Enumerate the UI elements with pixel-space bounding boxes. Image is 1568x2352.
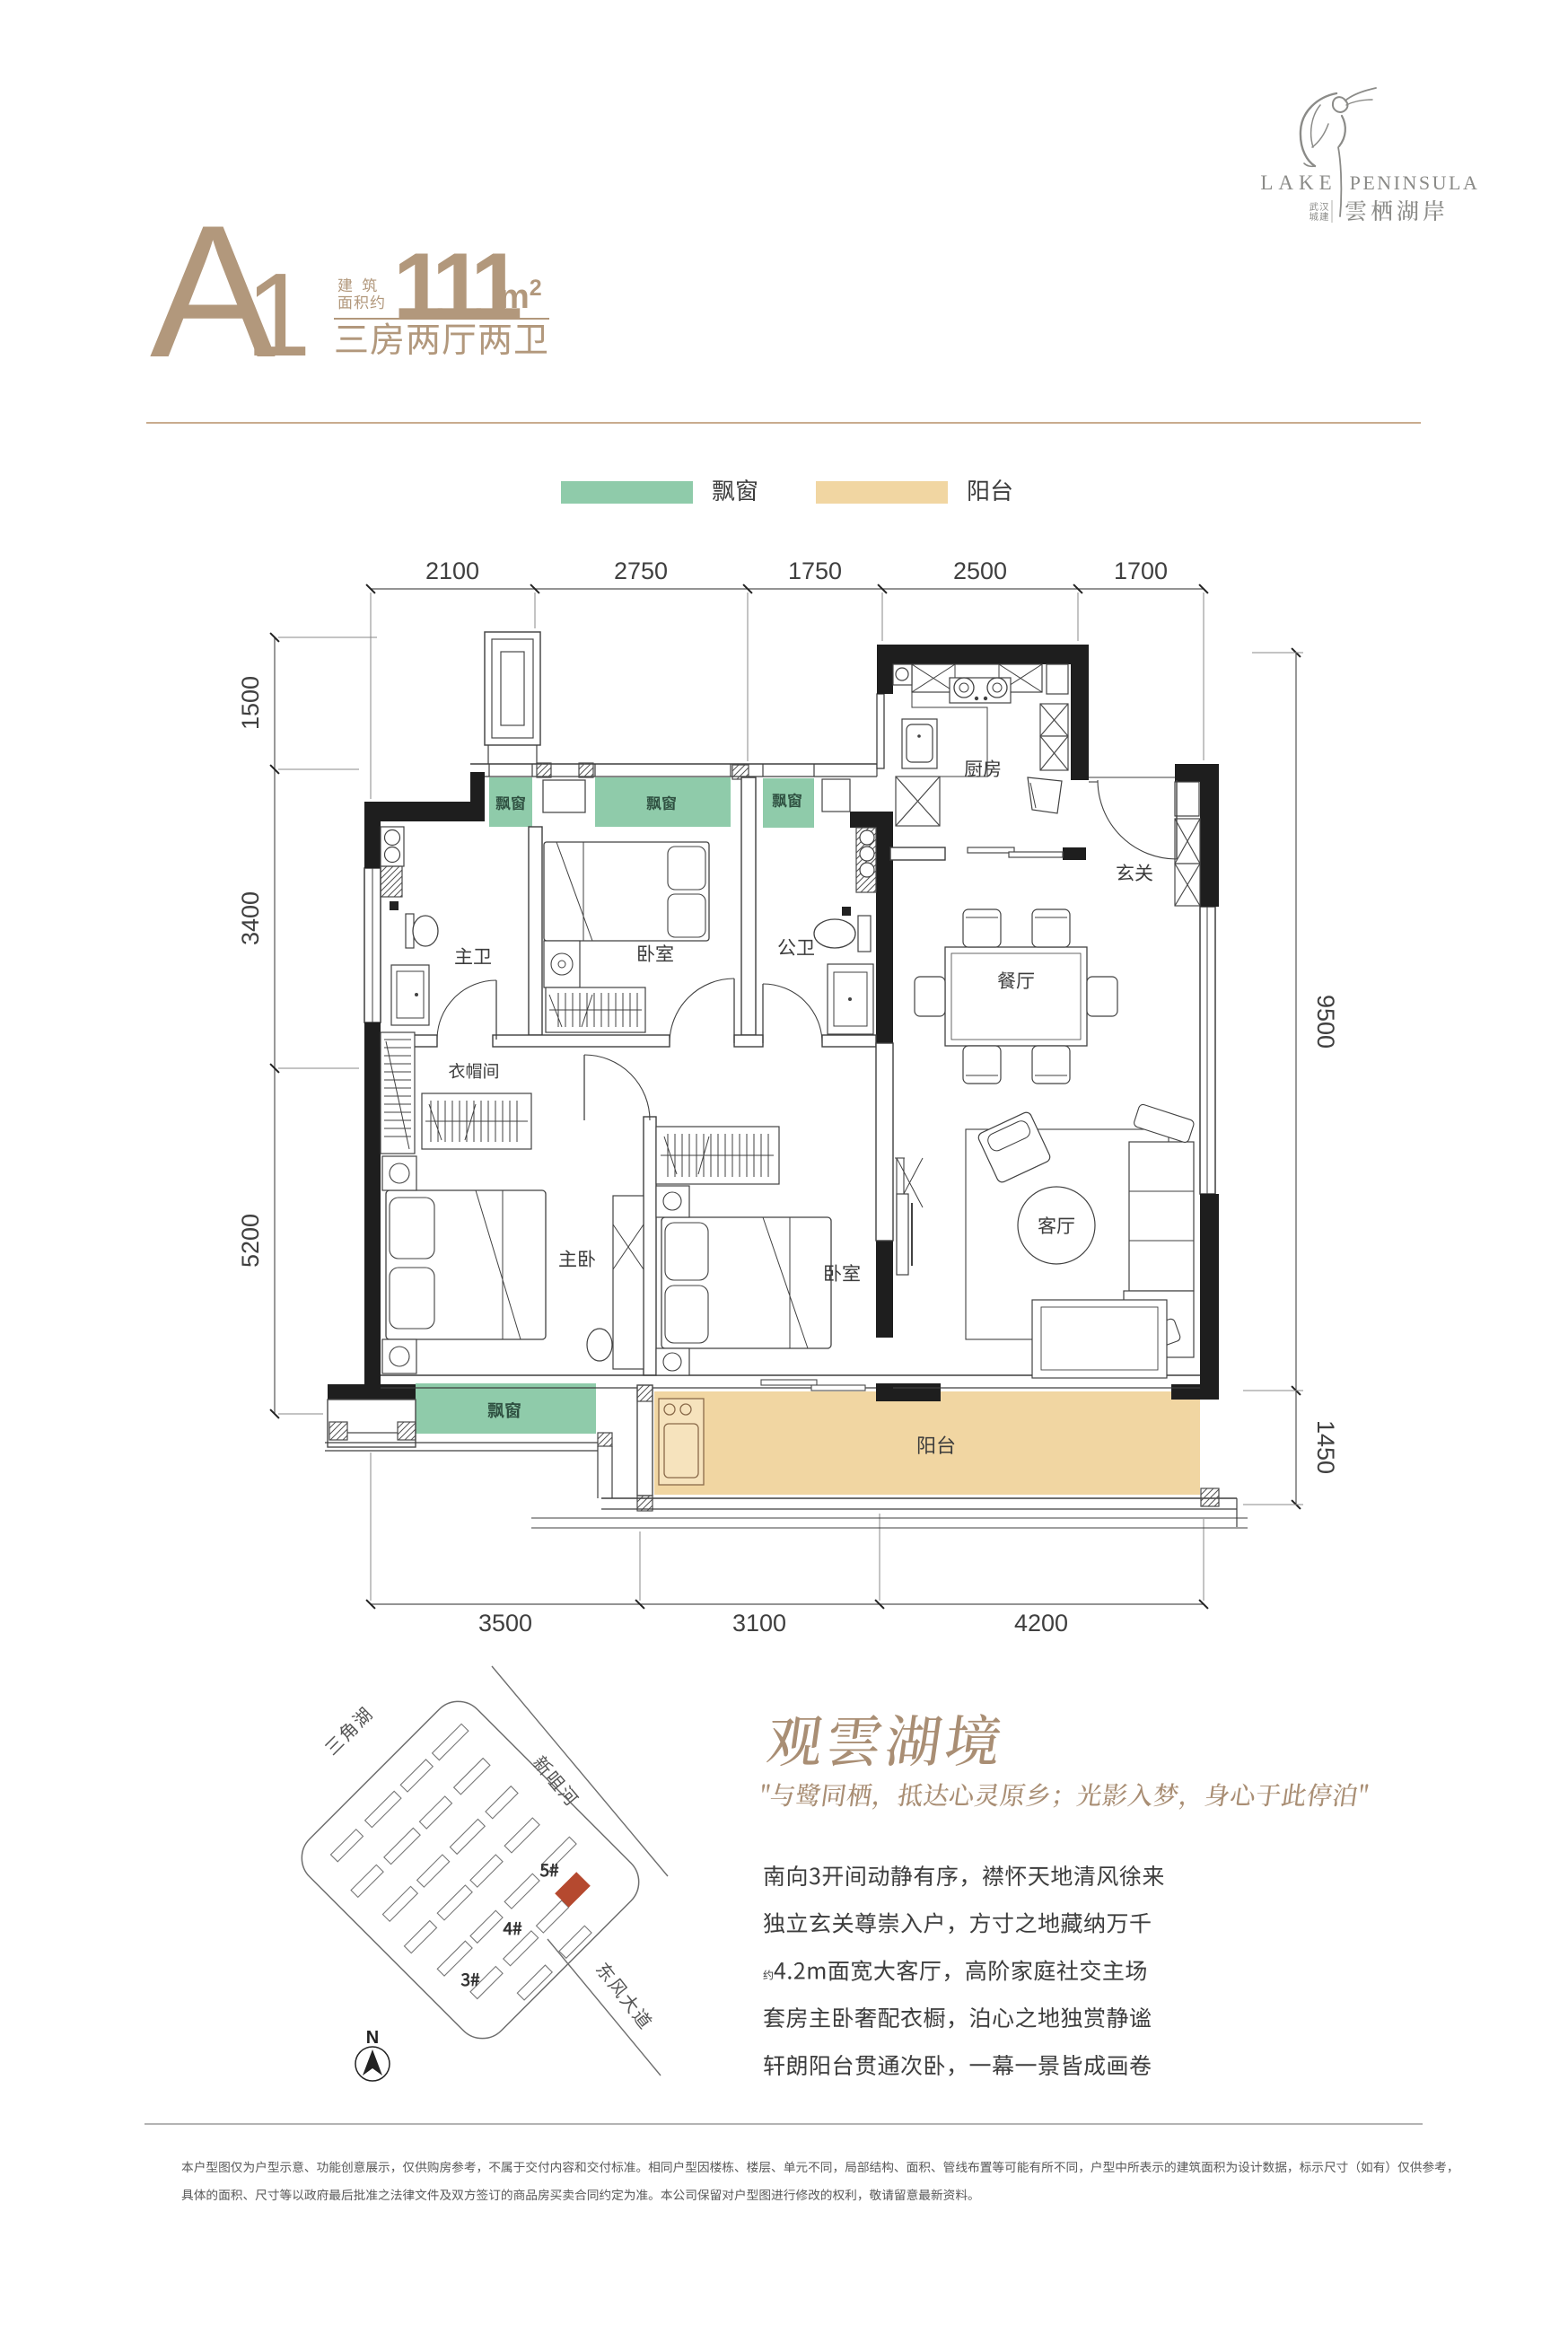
svg-text:飘窗: 飘窗 xyxy=(646,791,677,813)
svg-text:3#: 3# xyxy=(460,1967,480,1991)
svg-text:9500: 9500 xyxy=(1312,995,1339,1049)
svg-text:1700: 1700 xyxy=(1114,557,1168,584)
svg-text:2100: 2100 xyxy=(425,557,479,584)
svg-text:新咀河: 新咀河 xyxy=(528,1750,586,1812)
svg-text:三房两厅两卫: 三房两厅两卫 xyxy=(334,312,549,363)
svg-text:主卧: 主卧 xyxy=(558,1245,596,1272)
svg-text:约4.2m面宽大客厅，高阶家庭社交主场: 约4.2m面宽大客厅，高阶家庭社交主场 xyxy=(763,1953,1148,1986)
svg-text:卧室: 卧室 xyxy=(636,940,674,967)
svg-text:PENINSULA: PENINSULA xyxy=(1350,171,1480,194)
svg-text:3500: 3500 xyxy=(478,1610,532,1637)
svg-text:"与鹭同栖，抵达心灵原乡；光影入梦，身心于此停泊": "与鹭同栖，抵达心灵原乡；光影入梦，身心于此停泊" xyxy=(758,1777,1371,1812)
svg-text:东风大道: 东风大道 xyxy=(591,1956,660,2034)
svg-text:3100: 3100 xyxy=(732,1610,786,1637)
svg-text:4#: 4# xyxy=(503,1916,522,1940)
svg-text:2750: 2750 xyxy=(614,557,668,584)
svg-text:卧室: 卧室 xyxy=(823,1259,861,1286)
svg-text:N: N xyxy=(366,2028,379,2048)
svg-text:阳台: 阳台 xyxy=(916,1430,956,1459)
svg-text:1: 1 xyxy=(245,249,311,381)
svg-text:飘窗: 飘窗 xyxy=(712,473,758,506)
svg-text:餐厅: 餐厅 xyxy=(997,967,1035,994)
svg-text:1750: 1750 xyxy=(788,557,842,584)
svg-text:雲栖湖岸: 雲栖湖岸 xyxy=(1345,194,1449,226)
svg-text:飘窗: 飘窗 xyxy=(487,1398,521,1422)
svg-text:飘窗: 飘窗 xyxy=(772,788,802,811)
svg-text:5#: 5# xyxy=(539,1857,559,1882)
svg-text:南向3开间动静有序，襟怀天地清风徐来: 南向3开间动静有序，襟怀天地清风徐来 xyxy=(763,1859,1165,1891)
svg-text:玄关: 玄关 xyxy=(1116,859,1153,886)
svg-text:公卫: 公卫 xyxy=(777,934,815,961)
svg-text:LAKE: LAKE xyxy=(1260,171,1336,194)
svg-text:飘窗: 飘窗 xyxy=(495,791,526,813)
svg-text:独立玄关尊崇入户，方寸之地藏纳万千: 独立玄关尊崇入户，方寸之地藏纳万千 xyxy=(763,1907,1152,1939)
svg-text:1450: 1450 xyxy=(1312,1420,1339,1474)
svg-text:主卫: 主卫 xyxy=(454,943,492,970)
svg-text:三角湖: 三角湖 xyxy=(318,1699,378,1760)
svg-text:3400: 3400 xyxy=(237,891,264,945)
svg-text:4200: 4200 xyxy=(1014,1610,1068,1637)
svg-text:阳台: 阳台 xyxy=(967,473,1013,506)
svg-text:客厅: 客厅 xyxy=(1038,1212,1075,1239)
svg-text:m2: m2 xyxy=(499,276,542,316)
svg-text:厨房: 厨房 xyxy=(964,755,1002,782)
svg-text:城建: 城建 xyxy=(1310,210,1330,224)
svg-text:面积约: 面积约 xyxy=(337,290,386,312)
svg-text:5200: 5200 xyxy=(237,1214,264,1268)
svg-text:1500: 1500 xyxy=(237,676,264,730)
svg-text:衣帽间: 衣帽间 xyxy=(448,1058,499,1083)
svg-text:轩朗阳台贯通次卧，一幕一景皆成画卷: 轩朗阳台贯通次卧，一幕一景皆成画卷 xyxy=(763,2049,1152,2081)
svg-text:2500: 2500 xyxy=(953,557,1007,584)
svg-text:观雲湖境: 观雲湖境 xyxy=(762,1697,1011,1777)
svg-text:套房主卧奢配衣橱，泊心之地独赏静谧: 套房主卧奢配衣橱，泊心之地独赏静谧 xyxy=(763,2001,1152,2033)
